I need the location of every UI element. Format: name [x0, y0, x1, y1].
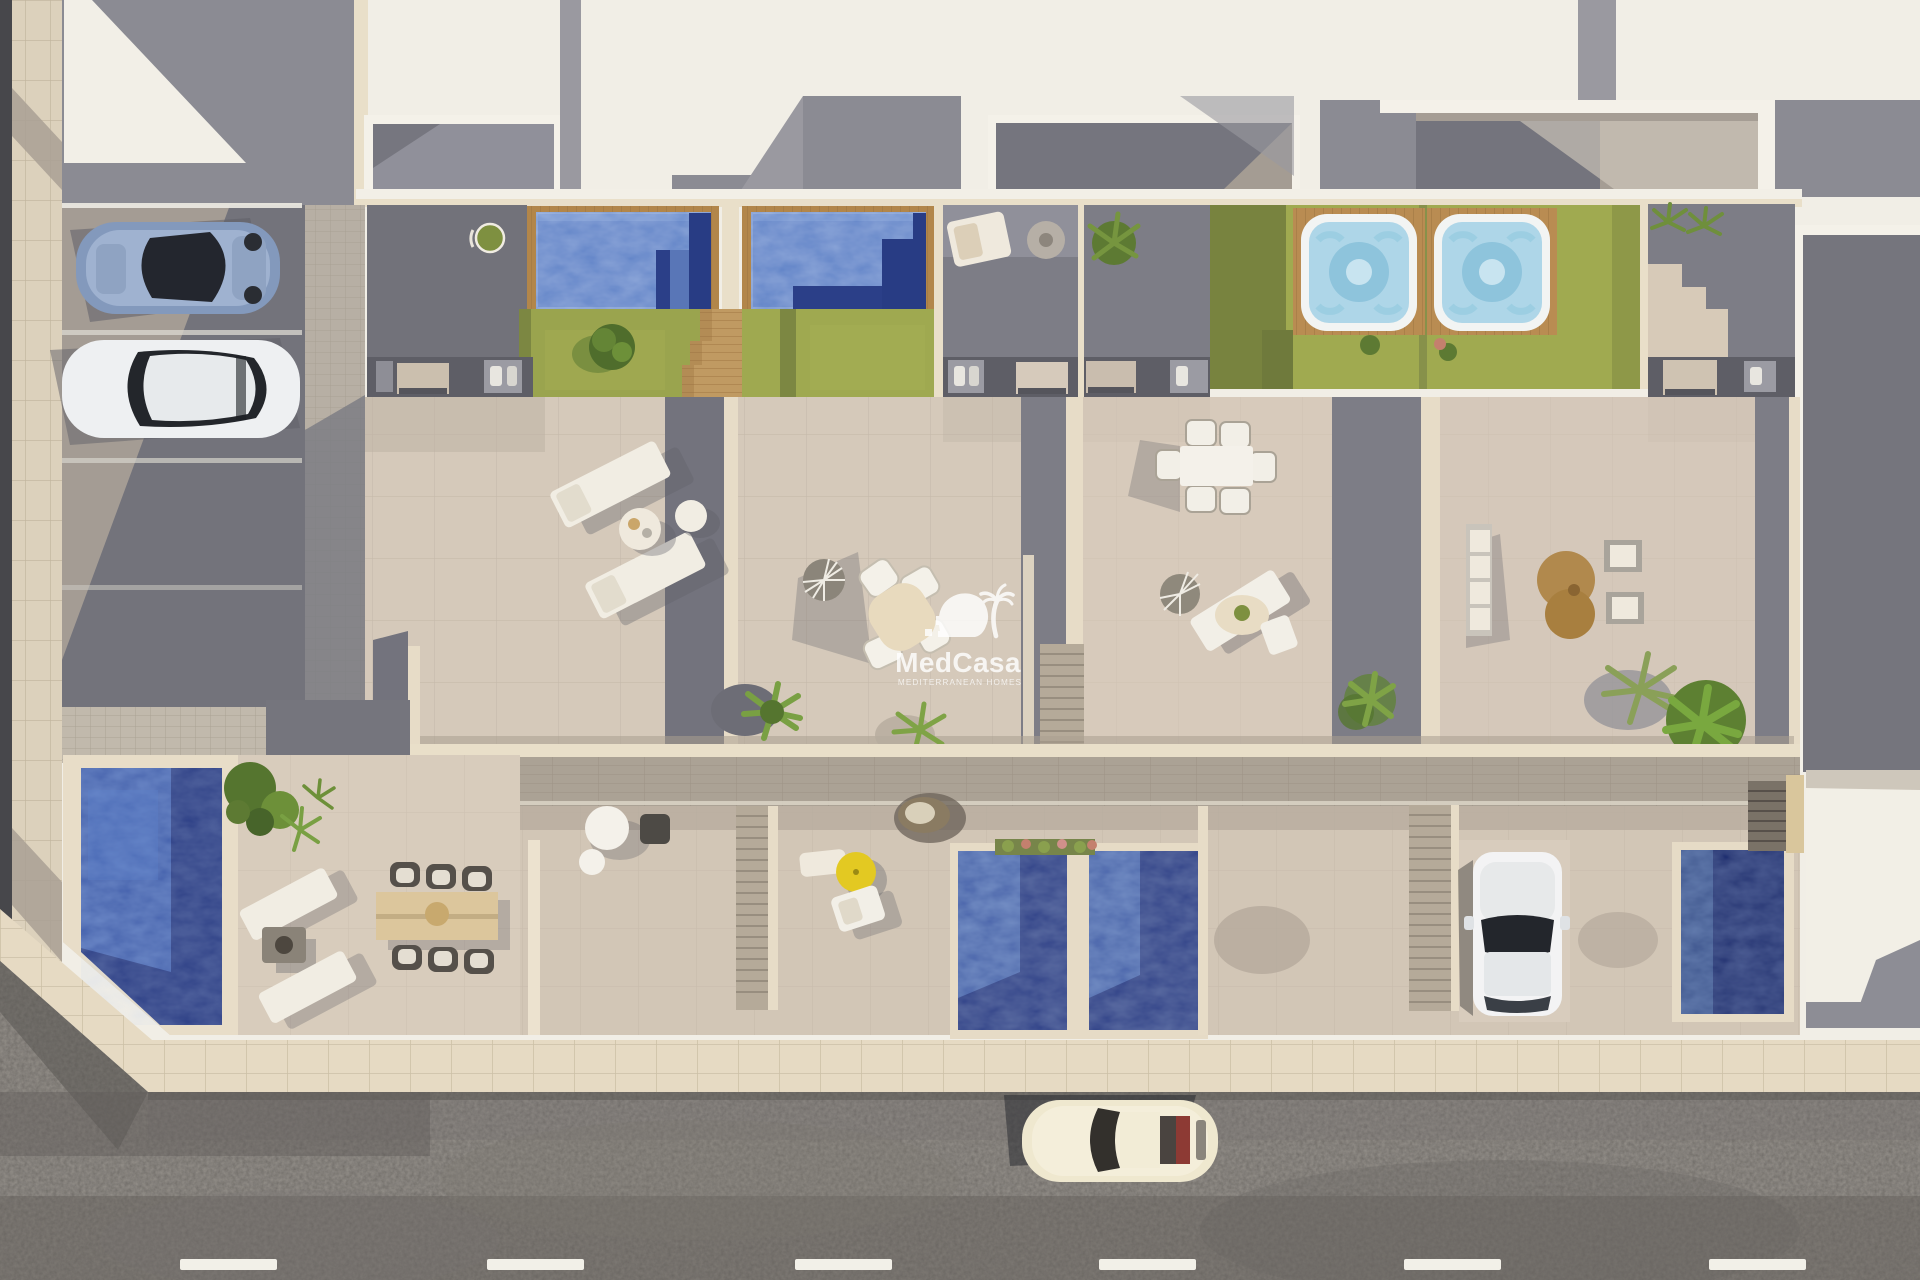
svg-text:MedCasa: MedCasa — [895, 647, 1021, 678]
svg-text:MEDITERRANEAN HOMES: MEDITERRANEAN HOMES — [898, 678, 1022, 687]
